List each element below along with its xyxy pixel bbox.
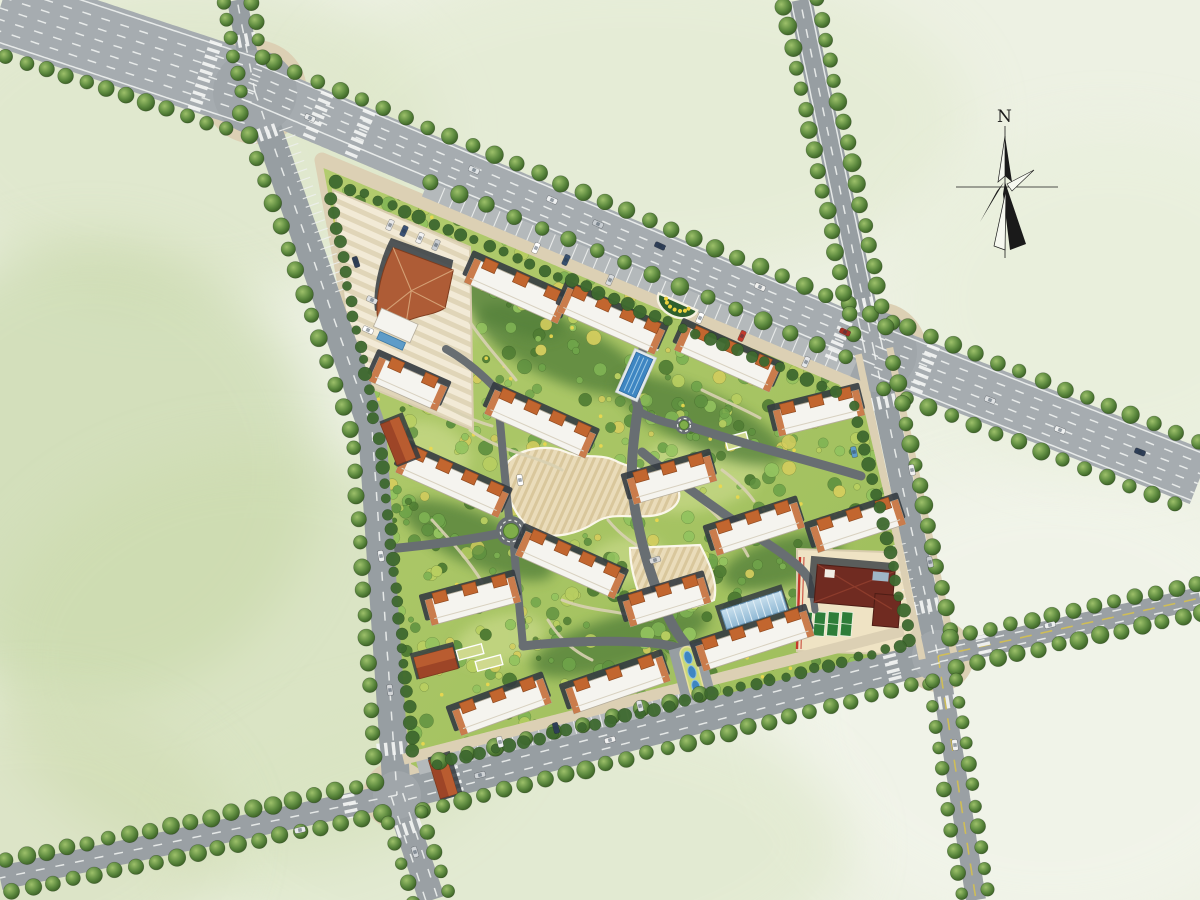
hedge-tree [346, 296, 357, 307]
street-tree [859, 218, 873, 232]
street-tree [349, 781, 363, 795]
street-tree [180, 109, 194, 123]
street-tree [287, 262, 304, 279]
street-tree [0, 49, 13, 63]
street-tree [868, 277, 885, 294]
street-tree [1144, 486, 1161, 503]
hedge-tree [862, 457, 876, 471]
street-tree [183, 814, 199, 830]
street-tree [968, 345, 984, 361]
street-tree [200, 116, 214, 130]
street-tree [836, 114, 852, 130]
street-tree [245, 800, 263, 818]
street-tree [162, 817, 179, 834]
street-tree [273, 218, 290, 235]
street-tree [251, 833, 267, 849]
hedge-tree [874, 501, 886, 513]
street-tree [802, 705, 816, 719]
flower-dot [549, 334, 553, 338]
street-tree [843, 154, 861, 172]
street-tree [782, 325, 798, 341]
street-tree [86, 867, 103, 884]
street-tree [810, 163, 826, 179]
hedge-tree [618, 708, 632, 722]
hedge-tree [389, 567, 399, 577]
street-tree [284, 792, 302, 810]
garden-tree [546, 607, 559, 620]
hedge-tree [499, 247, 509, 257]
garden-tree [640, 394, 652, 406]
street-tree [137, 93, 155, 111]
street-tree [779, 17, 797, 35]
street-tree [978, 862, 991, 875]
flower-dot [599, 444, 603, 448]
street-tree [313, 820, 329, 836]
street-tree [190, 845, 207, 862]
garden-tree [565, 587, 579, 601]
street-tree [1168, 497, 1183, 512]
car-windshield [928, 560, 932, 564]
garden-tree [579, 393, 592, 406]
garden-tree [782, 435, 797, 450]
hedge-tree [445, 753, 457, 765]
garden-tree [562, 657, 576, 671]
garden-tree [408, 617, 414, 623]
street-tree [210, 840, 225, 855]
street-tree [1012, 364, 1026, 378]
street-tree [989, 427, 1004, 442]
garden-tree [782, 461, 796, 475]
flower-dot [486, 683, 490, 687]
hedge-tree [589, 719, 601, 731]
street-tree [680, 735, 697, 752]
street-tree [598, 756, 613, 771]
street-tree [969, 800, 982, 813]
street-tree [1077, 462, 1092, 477]
hedge-tree [817, 381, 828, 392]
street-tree [320, 354, 334, 368]
street-tree [355, 582, 371, 598]
hedge-tree [469, 235, 478, 244]
street-tree [806, 142, 823, 159]
garden-tree [409, 502, 418, 511]
street-tree [98, 80, 114, 96]
street-tree [476, 788, 490, 802]
flower-dot [719, 484, 723, 488]
street-tree [945, 408, 959, 422]
hedge-tree [340, 266, 352, 278]
street-tree [729, 302, 743, 316]
hedge-tree [360, 189, 369, 198]
street-tree [351, 512, 366, 527]
hedge-tree [454, 229, 467, 242]
street-tree [360, 655, 377, 672]
street-tree [781, 709, 797, 725]
hedge-tree [800, 372, 814, 386]
garden-tree [391, 503, 401, 513]
hedge-tree [679, 694, 691, 706]
street-tree [1107, 595, 1121, 609]
street-tree [532, 165, 548, 181]
street-tree [335, 399, 352, 416]
street-tree [938, 599, 955, 616]
hedge-tree [608, 293, 620, 305]
garden-tree [420, 492, 429, 501]
street-tree [1057, 382, 1073, 398]
garden-tree [666, 444, 678, 456]
street-tree [618, 202, 635, 219]
street-tree [819, 33, 833, 47]
street-tree [229, 835, 246, 852]
car [387, 684, 394, 696]
garden-tree [551, 593, 558, 600]
garden-tree [713, 371, 726, 384]
street-tree [271, 827, 288, 844]
flower-dot [484, 356, 488, 360]
street-tree [934, 580, 949, 595]
hedge-tree [889, 575, 900, 586]
hedge-tree [836, 657, 847, 668]
hedge-tree [731, 344, 743, 356]
street-tree [203, 810, 221, 828]
street-tree [926, 700, 938, 712]
street-tree [436, 799, 450, 813]
hedge-tree [591, 286, 605, 300]
street-tree [899, 417, 913, 431]
hedge-tree [338, 251, 350, 263]
garden-tree [666, 348, 671, 353]
street-tree [826, 244, 843, 261]
hedge-tree [539, 265, 551, 277]
street-tree [843, 695, 858, 710]
roundabout-green-center [504, 524, 519, 539]
hedge-tree [342, 281, 351, 290]
hedge-tree [822, 660, 835, 673]
street-tree [983, 622, 997, 636]
flower-dot [543, 442, 547, 446]
street-tree [395, 858, 407, 870]
sport-court [840, 612, 853, 637]
street-tree [466, 138, 480, 152]
street-tree [332, 82, 349, 99]
street-tree [829, 93, 847, 111]
street-tree [354, 559, 371, 576]
street-tree [590, 244, 604, 258]
street-tree [989, 649, 1006, 666]
hedge-tree [443, 224, 454, 235]
garden-tree [773, 484, 785, 496]
car-windshield [379, 554, 383, 558]
garden-tree [692, 434, 699, 441]
street-tree [415, 805, 428, 818]
street-tree [25, 879, 42, 896]
street-tree [18, 847, 36, 865]
master-plan-canvas: N [0, 0, 1200, 900]
hedge-tree [328, 207, 340, 219]
street-tree [1169, 580, 1185, 596]
street-tree [966, 417, 982, 433]
hedge-tree [870, 489, 882, 501]
street-tree [264, 194, 282, 212]
street-tree [912, 478, 928, 494]
street-tree [366, 773, 384, 791]
hedge-tree [884, 546, 897, 559]
roof-detail [824, 569, 835, 578]
hedge-tree [604, 715, 616, 727]
hedge-tree [854, 652, 863, 661]
street-tree [1031, 642, 1047, 658]
site-plan-rendering: N [0, 0, 1200, 900]
hedge-tree [375, 448, 387, 460]
street-tree [1087, 598, 1102, 613]
hedge-tree [352, 326, 361, 335]
street-tree [740, 718, 756, 734]
hedge-tree [581, 280, 593, 292]
garden-tree [622, 438, 629, 445]
hedge-tree [334, 235, 347, 248]
skylight [872, 571, 889, 581]
hedge-tree [553, 272, 562, 281]
hedge-tree [533, 733, 545, 745]
street-tree [796, 277, 813, 294]
street-tree [700, 730, 715, 745]
garden-tree [461, 433, 468, 440]
garden-tree [606, 397, 611, 402]
garden-tree [833, 485, 845, 497]
garden-tree [816, 448, 821, 453]
street-tree [241, 127, 258, 144]
hedge-tree [560, 724, 572, 736]
garden-tree [738, 577, 746, 585]
street-tree [1147, 416, 1162, 431]
hedge-tree [380, 479, 390, 489]
hedge-tree [381, 494, 390, 503]
street-tree [1091, 626, 1109, 644]
street-tree [1003, 617, 1017, 631]
hedge-tree [373, 196, 383, 206]
garden-tree [648, 431, 654, 437]
street-tree [342, 421, 359, 438]
hedge-tree [513, 253, 523, 263]
street-tree [754, 312, 772, 330]
street-tree [618, 752, 634, 768]
hedge-tree [746, 351, 758, 363]
street-tree [1114, 624, 1130, 640]
street-tree [38, 844, 55, 861]
garden-tree [489, 568, 496, 575]
street-tree [20, 57, 34, 71]
hedge-tree [775, 362, 785, 372]
flower-dot [681, 404, 685, 408]
street-tree [924, 539, 941, 556]
hedge-tree [398, 205, 411, 218]
street-tree [561, 231, 577, 247]
street-tree [933, 742, 945, 754]
street-tree [400, 875, 416, 891]
street-tree [1175, 609, 1192, 626]
flower-dot [792, 448, 796, 452]
garden-tree [719, 557, 728, 566]
street-tree [255, 50, 270, 65]
street-tree [701, 290, 716, 305]
street-tree [381, 816, 395, 830]
street-tree [1033, 443, 1051, 461]
garden-tree [753, 560, 763, 570]
street-tree [842, 306, 857, 321]
hedge-tree [902, 619, 914, 631]
street-tree [142, 823, 158, 839]
street-tree [353, 535, 367, 549]
street-tree [661, 741, 675, 755]
hedge-tree [858, 444, 870, 456]
hedge-tree [867, 650, 876, 659]
hedge-tree [716, 337, 730, 351]
street-tree [575, 184, 592, 201]
street-tree [1009, 645, 1026, 662]
garden-tree [496, 375, 504, 383]
hedge-tree [524, 259, 535, 270]
street-tree [347, 441, 361, 455]
garden-tree [505, 322, 516, 333]
street-tree [232, 105, 248, 121]
garden-tree [745, 569, 754, 578]
street-tree [509, 156, 524, 171]
hedge-tree [392, 596, 403, 607]
hedge-tree [881, 644, 890, 653]
garden-tree [780, 563, 787, 570]
hedge-tree [705, 686, 719, 700]
street-tree [306, 787, 322, 803]
garden-tree [531, 597, 541, 607]
hedge-tree [517, 736, 530, 749]
sport-court [813, 612, 826, 637]
street-tree [281, 242, 295, 256]
flower-dot [655, 518, 659, 522]
street-tree [761, 715, 777, 731]
flower-dot [429, 447, 433, 451]
street-tree [231, 66, 246, 81]
garden-tree [584, 538, 592, 546]
street-tree [961, 756, 977, 772]
hedge-tree [894, 640, 907, 653]
street-tree [420, 825, 435, 840]
street-tree [823, 53, 838, 68]
hedge-tree [359, 355, 368, 364]
street-tree [1080, 391, 1094, 405]
hedge-tree [403, 716, 417, 730]
street-tree [376, 101, 391, 116]
street-tree [364, 703, 379, 718]
hedge-tree [382, 509, 393, 520]
hedge-tree [392, 613, 404, 625]
street-tree [970, 655, 986, 671]
hedge-tree [502, 738, 516, 752]
roundabout-green-center [680, 421, 689, 430]
sport-court [826, 612, 839, 637]
garden-tree [765, 463, 780, 478]
street-tree [537, 771, 553, 787]
garden-tree [659, 360, 674, 375]
garden-tree [614, 373, 621, 380]
hedge-tree [388, 200, 398, 210]
hedge-tree [406, 731, 420, 745]
garden-tree [594, 363, 607, 376]
street-tree [686, 230, 703, 247]
street-tree [258, 174, 272, 188]
street-tree [956, 716, 969, 729]
flower-dot [509, 377, 513, 381]
street-tree [902, 435, 920, 453]
street-tree [66, 871, 81, 886]
street-tree [235, 85, 248, 98]
street-tree [365, 748, 382, 765]
street-tree [264, 797, 282, 815]
hedge-tree [391, 583, 402, 594]
street-tree [535, 222, 549, 236]
street-tree [1127, 589, 1143, 605]
hedge-tree [894, 592, 904, 602]
street-tree [1122, 406, 1140, 424]
street-tree [224, 31, 238, 45]
street-tree [365, 726, 380, 741]
street-tree [970, 819, 985, 834]
garden-tree [714, 565, 726, 577]
garden-tree [583, 533, 588, 538]
street-tree [1122, 479, 1136, 493]
street-tree [923, 329, 938, 344]
street-tree [597, 194, 613, 210]
street-tree [663, 222, 679, 238]
car-windshield [518, 478, 522, 482]
garden-tree [494, 552, 500, 558]
street-tree [925, 674, 939, 688]
street-tree [929, 720, 942, 733]
hedge-tree [565, 273, 579, 287]
hedge-tree [403, 700, 416, 713]
hedge-tree [484, 240, 496, 252]
hedge-tree [473, 747, 486, 760]
street-tree [168, 849, 186, 867]
hedge-tree [782, 673, 791, 682]
garden-tree [392, 518, 397, 523]
garden-tree [495, 672, 502, 679]
hedge-tree [649, 310, 661, 322]
garden-tree [525, 616, 532, 623]
street-tree [0, 853, 13, 868]
garden-tree [424, 572, 432, 580]
street-tree [252, 34, 265, 47]
street-tree [1011, 433, 1027, 449]
hedge-tree [385, 523, 398, 536]
street-tree [941, 802, 955, 816]
street-tree [1148, 586, 1163, 601]
street-tree [333, 815, 349, 831]
street-tree [915, 496, 933, 514]
hedge-tree [412, 210, 426, 224]
hedge-tree [663, 316, 673, 326]
street-tree [920, 518, 935, 533]
street-tree [671, 278, 689, 296]
garden-tree [794, 539, 803, 548]
street-tree [945, 336, 962, 353]
street-tree [249, 151, 264, 166]
garden-tree [419, 714, 433, 728]
street-tree [441, 128, 458, 145]
street-tree [287, 65, 302, 80]
garden-tree [605, 422, 615, 432]
street-tree [950, 865, 965, 880]
hedge-tree [432, 760, 442, 770]
